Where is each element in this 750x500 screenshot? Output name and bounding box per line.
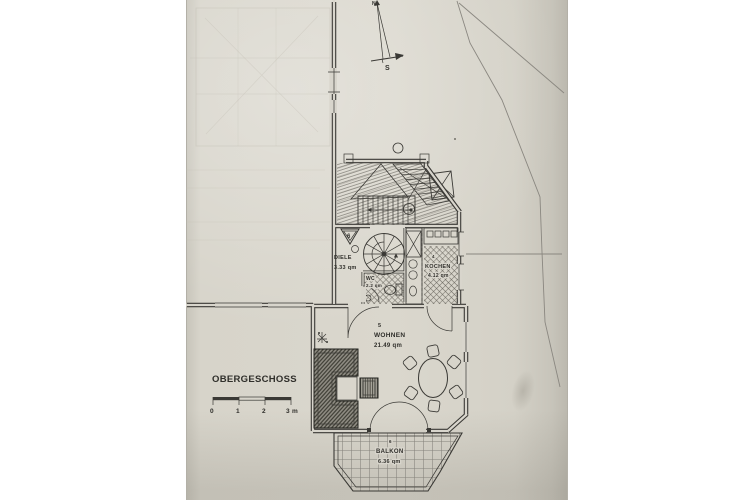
room-number-wohnen: 5 — [378, 323, 381, 329]
north-arrow-icon: N S — [371, 0, 404, 72]
balcony: 6 BALKON 6.36 qm — [330, 430, 470, 496]
shelf-sofa-unit — [314, 349, 358, 428]
room-number-kochen: 4 — [432, 254, 435, 259]
room-label-balkon: BALKON — [376, 449, 403, 455]
ghost-neighbor-building — [186, 8, 330, 240]
floor-title: OBERGESCHOSS — [212, 374, 297, 385]
dining-table-set — [402, 344, 463, 412]
balcony-french-doors — [367, 402, 431, 432]
kitchen-sink — [409, 260, 417, 268]
scale-tick-2: 2 — [262, 408, 266, 415]
floor-plan-drawing: N S — [0, 0, 750, 500]
kitchen-sink — [409, 271, 417, 279]
room-label-wohnen: WOHNEN — [374, 332, 405, 339]
room-area-diele: 3.33 qm — [334, 265, 357, 271]
site-boundary-lines — [454, 1, 564, 387]
section-marker: 6 — [341, 229, 359, 244]
floor-plan-page: N S — [0, 0, 750, 500]
roof-hatch-area — [335, 143, 465, 228]
scale-tick-0: 0 — [210, 408, 214, 415]
plant-icon — [317, 332, 328, 343]
kitchen-door-arc — [427, 306, 452, 331]
dining-table — [419, 359, 448, 398]
compass-north-label: N — [372, 1, 376, 7]
room-area-wc: 2.2 qm — [366, 283, 382, 288]
column-circle — [393, 143, 403, 153]
room-area-balkon: 6.36 qm — [378, 459, 401, 465]
room-area-kochen: 4.12 qm — [428, 273, 449, 279]
room-number-balkon: 6 — [389, 439, 392, 444]
kitchen-room: 4 KOCHEN 4.12 qm — [406, 228, 458, 331]
scale-bar: 0 1 2 3 m — [210, 397, 298, 415]
wc-room: WC 2.2 qm — [361, 274, 404, 304]
room-area-wohnen: 21.49 qm — [374, 343, 402, 349]
spiral-staircase — [352, 234, 405, 275]
room-label-diele: DIELE — [334, 255, 352, 261]
scale-tick-1: 1 — [236, 408, 240, 415]
paper-crease — [507, 368, 539, 414]
shelf-inner-box — [337, 377, 357, 400]
kitchen-counter — [406, 228, 422, 304]
scale-tick-3: 3 m — [286, 408, 298, 415]
room-label-wc: WC — [366, 276, 375, 282]
room-label-kochen: KOCHEN — [425, 264, 451, 270]
title-block: OBERGESCHOSS 0 1 2 3 m — [210, 374, 298, 415]
wohnen-room: 5 WOHNEN 21.49 qm — [314, 323, 464, 432]
section-marker-label: 6 — [347, 234, 351, 240]
compass-south-label: S — [385, 65, 390, 72]
